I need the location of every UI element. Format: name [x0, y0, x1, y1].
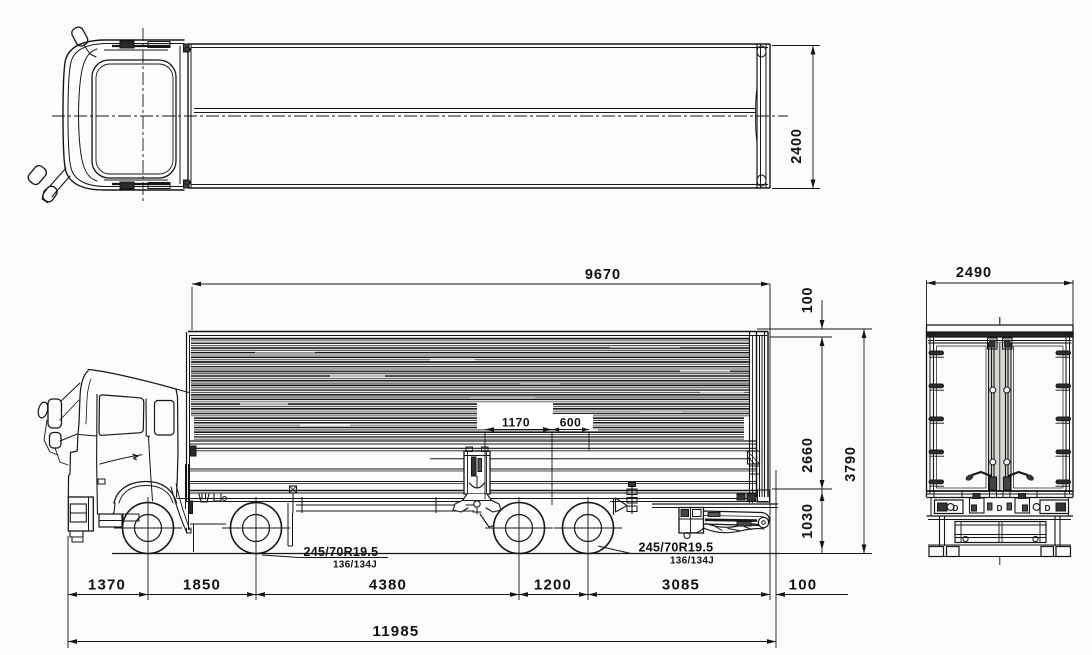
svg-text:2400: 2400 — [789, 128, 805, 163]
svg-text:245/70R19.5: 245/70R19.5 — [639, 541, 714, 555]
svg-text:1200: 1200 — [534, 577, 572, 594]
svg-text:245/70R19.5: 245/70R19.5 — [304, 545, 379, 559]
svg-text:3790: 3790 — [843, 446, 859, 481]
svg-text:D: D — [997, 504, 1003, 513]
svg-text:136/134J: 136/134J — [333, 560, 377, 571]
svg-text:11985: 11985 — [373, 623, 420, 640]
svg-text:9670: 9670 — [585, 267, 621, 283]
svg-text:136/134J: 136/134J — [670, 556, 714, 567]
svg-text:600: 600 — [560, 416, 582, 430]
svg-text:2490: 2490 — [956, 265, 992, 281]
svg-text:4380: 4380 — [369, 577, 407, 594]
svg-text:3085: 3085 — [662, 577, 700, 594]
svg-text:1030: 1030 — [800, 503, 816, 538]
svg-text:D: D — [1045, 504, 1051, 513]
svg-text:1850: 1850 — [183, 577, 221, 594]
svg-text:2660: 2660 — [800, 437, 816, 472]
svg-text:100: 100 — [800, 287, 816, 314]
svg-text:1170: 1170 — [502, 416, 530, 430]
svg-text:1370: 1370 — [88, 577, 126, 594]
svg-text:100: 100 — [789, 577, 818, 594]
